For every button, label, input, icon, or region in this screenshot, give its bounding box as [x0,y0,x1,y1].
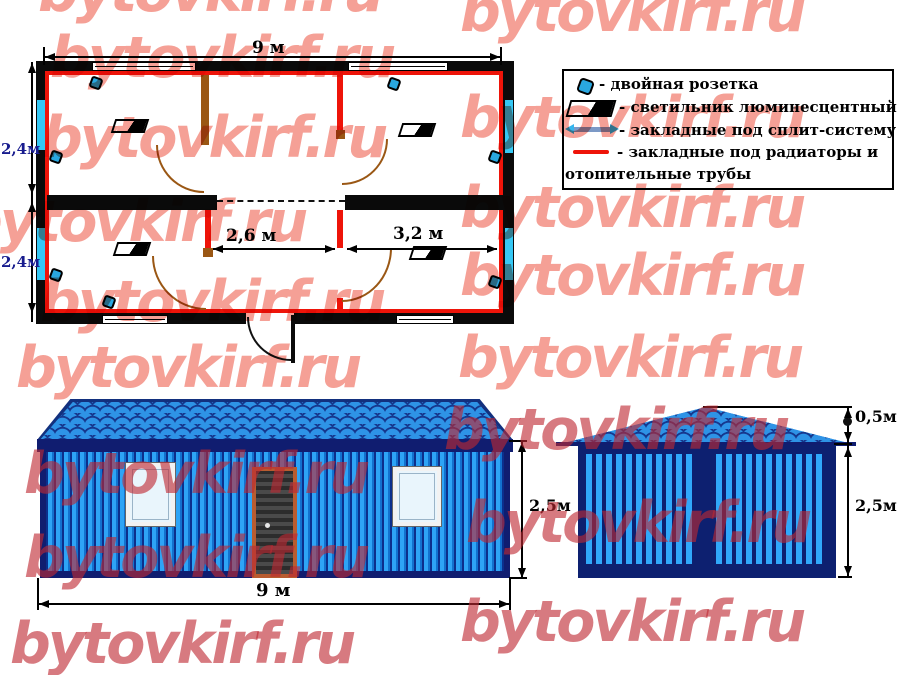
dimension-label: 2,5м [855,496,897,515]
watermark: bytovkirf.ru [16,340,359,397]
watermark: bytovkirf.ru [38,0,381,21]
arrowhead [844,432,852,442]
watermark: bytovkirf.ru [40,274,383,331]
dimension-tick [43,47,45,65]
partition-v4 [337,210,343,248]
dimension-tick [500,47,502,65]
dimension-tick [838,576,852,578]
watermark: bytovkirf.ru [460,180,803,237]
watermark: bytovkirf.ru [10,616,353,673]
dimension-label: 3,2 м [393,224,443,244]
watermark: bytovkirf.ru [444,402,787,459]
dimension-dot [843,417,852,426]
dimension-tick [834,443,852,445]
watermark: bytovkirf.ru [460,594,803,651]
arrowhead [347,245,357,253]
watermark: bytovkirf.ru [0,194,305,251]
arrowhead [28,63,36,73]
watermark: bytovkirf.ru [460,0,803,41]
light-symbol [398,123,437,137]
front-window [393,467,441,526]
watermark: bytovkirf.ru [458,330,801,387]
dimension-label: 0,5м [855,407,897,426]
arrowhead [490,53,500,61]
watermark: bytovkirf.ru [50,30,393,87]
arrowhead [844,447,852,457]
arrowhead [39,600,49,608]
watermark: bytovkirf.ru [460,248,803,305]
watermark: bytovkirf.ru [42,110,385,167]
dimension-label: 2,4м [1,253,40,271]
arrowhead [28,303,36,313]
watermark: bytovkirf.ru [24,446,367,503]
dimension-label: 2,4м [1,140,40,158]
dimension-line [39,603,509,605]
arrowhead [325,245,335,253]
watermark: bytovkirf.ru [460,90,803,147]
window-symbol [396,315,454,324]
watermark: bytovkirf.ru [466,495,809,552]
blueprint-canvas: 9 м 2,4м 2,4м 2,6 м 3,2 м - двойная розе… [0,0,900,675]
front-roof-shingles [40,402,510,440]
watermark: bytovkirf.ru [24,530,367,587]
arrowhead [844,566,852,576]
arrowhead [844,408,852,418]
arrowhead [518,568,526,578]
